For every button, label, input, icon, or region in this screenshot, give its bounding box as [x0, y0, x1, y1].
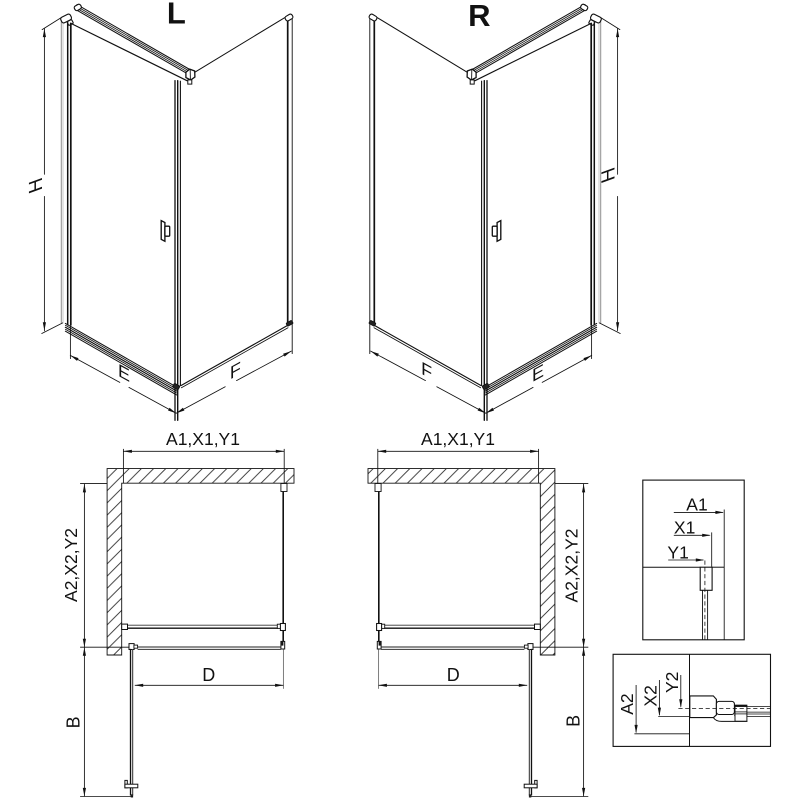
svg-text:E: E [532, 361, 544, 387]
svg-text:B: B [563, 715, 583, 727]
svg-text:F: F [421, 359, 432, 385]
svg-text:D: D [202, 665, 215, 685]
svg-text:D: D [447, 665, 460, 685]
svg-text:L: L [167, 0, 186, 31]
svg-text:A1: A1 [686, 494, 707, 514]
svg-text:A1,X1,Y1: A1,X1,Y1 [421, 429, 495, 449]
svg-text:A2,X2,Y2: A2,X2,Y2 [61, 528, 81, 602]
svg-text:F: F [230, 359, 241, 385]
svg-text:R: R [468, 0, 490, 33]
svg-text:H: H [26, 175, 47, 196]
svg-text:E: E [118, 361, 130, 387]
svg-text:Y1: Y1 [667, 542, 688, 562]
svg-text:Y2: Y2 [662, 672, 682, 693]
svg-text:A2,X2,Y2: A2,X2,Y2 [562, 529, 582, 603]
svg-text:H: H [598, 164, 619, 185]
svg-text:A1,X1,Y1: A1,X1,Y1 [166, 429, 240, 449]
svg-text:X2: X2 [641, 685, 661, 706]
svg-text:A2: A2 [617, 693, 637, 714]
svg-text:X1: X1 [674, 518, 695, 538]
svg-text:B: B [64, 716, 84, 728]
